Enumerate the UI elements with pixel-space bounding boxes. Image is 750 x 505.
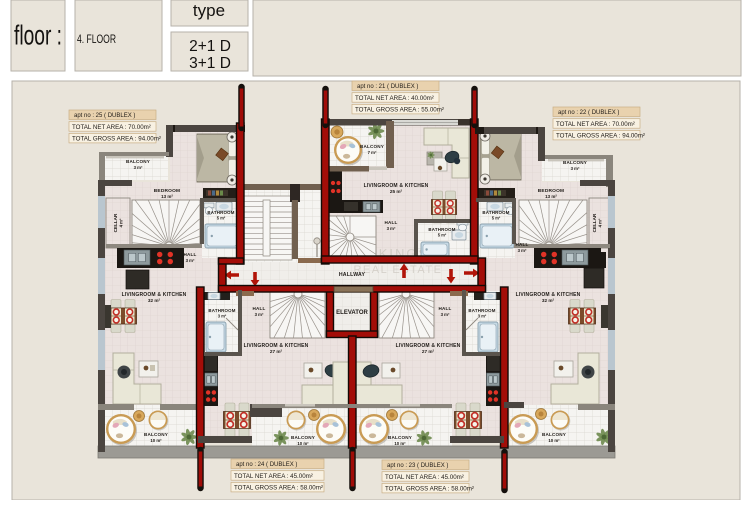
svg-text:3 m²: 3 m²	[255, 312, 264, 317]
svg-text:apt no : 22 ( DUBLEX ): apt no : 22 ( DUBLEX )	[558, 110, 619, 116]
svg-text:LIVINGROOM & KITCHEN: LIVINGROOM & KITCHEN	[122, 292, 187, 298]
svg-text:5 m²: 5 m²	[438, 233, 447, 238]
svg-text:3 m²: 3 m²	[478, 314, 487, 319]
svg-text:floor :: floor :	[14, 20, 62, 51]
svg-text:type: type	[193, 1, 225, 20]
svg-text:TOTAL NET AREA : 45.00m²: TOTAL NET AREA : 45.00m²	[385, 474, 464, 481]
svg-text:27 m²: 27 m²	[270, 349, 283, 354]
svg-text:3 m²: 3 m²	[218, 314, 227, 319]
svg-text:HALL: HALL	[515, 242, 528, 247]
svg-text:25 m²: 25 m²	[390, 189, 403, 194]
svg-text:5 m²: 5 m²	[492, 216, 501, 221]
svg-text:BALCONY: BALCONY	[144, 432, 168, 437]
svg-text:BALCONY: BALCONY	[542, 432, 566, 437]
svg-text:BATHROOM: BATHROOM	[482, 210, 509, 215]
svg-text:TOTAL NET AREA : 45.00m²: TOTAL NET AREA : 45.00m²	[234, 473, 313, 480]
svg-text:HALL: HALL	[183, 252, 196, 257]
svg-text:TOTAL GROSS AREA : 58.00m²: TOTAL GROSS AREA : 58.00m²	[234, 485, 323, 492]
svg-text:apt no : 24 ( DUBLEX ): apt no : 24 ( DUBLEX )	[236, 462, 297, 468]
svg-text:HALLWAY: HALLWAY	[339, 272, 366, 278]
svg-text:BALCONY: BALCONY	[360, 144, 384, 149]
svg-text:BATHROOM: BATHROOM	[207, 210, 234, 215]
svg-text:32 m²: 32 m²	[148, 298, 161, 303]
svg-text:apt no : 21 ( DUBLEX ): apt no : 21 ( DUBLEX )	[357, 84, 418, 90]
svg-text:CELLAR: CELLAR	[113, 213, 118, 232]
svg-text:HALL: HALL	[384, 220, 397, 225]
svg-text:5 m²: 5 m²	[217, 216, 226, 221]
svg-text:BALCONY: BALCONY	[126, 159, 150, 164]
svg-text:TOTAL NET AREA : 70.00m²: TOTAL NET AREA : 70.00m²	[72, 124, 151, 131]
svg-text:3 m²: 3 m²	[134, 165, 143, 170]
svg-text:10 m²: 10 m²	[548, 438, 560, 443]
svg-text:BATHROOM: BATHROOM	[208, 308, 235, 313]
svg-text:LIVINGROOM & KITCHEN: LIVINGROOM & KITCHEN	[516, 292, 581, 298]
svg-text:2+1 D: 2+1 D	[189, 38, 231, 55]
svg-text:BATHROOM: BATHROOM	[468, 308, 495, 313]
svg-text:4. FLOOR: 4. FLOOR	[77, 32, 116, 46]
svg-text:apt no : 25 ( DUBLEX ): apt no : 25 ( DUBLEX )	[74, 113, 135, 119]
svg-text:3 m²: 3 m²	[518, 248, 527, 253]
svg-text:TOTAL GROSS AREA : 58.00m²: TOTAL GROSS AREA : 58.00m²	[385, 486, 474, 493]
svg-text:10 m²: 10 m²	[150, 438, 162, 443]
svg-text:3 m²: 3 m²	[571, 166, 580, 171]
svg-text:10 m²: 10 m²	[297, 441, 309, 446]
svg-text:7 m²: 7 m²	[368, 150, 377, 155]
svg-text:ELEVATOR: ELEVATOR	[336, 310, 368, 316]
svg-text:BATHROOM: BATHROOM	[428, 227, 455, 232]
svg-text:BALCONY: BALCONY	[291, 435, 315, 440]
svg-text:TOTAL NET AREA : 70.00m²: TOTAL NET AREA : 70.00m²	[556, 121, 635, 128]
svg-text:LIVINGROOM & KITCHEN: LIVINGROOM & KITCHEN	[244, 343, 309, 349]
svg-text:TOTAL GROSS AREA : 94.00m²: TOTAL GROSS AREA : 94.00m²	[556, 133, 645, 140]
svg-text:4 m²: 4 m²	[119, 218, 124, 227]
svg-text:TOTAL GROSS AREA : 94.00m²: TOTAL GROSS AREA : 94.00m²	[72, 136, 161, 143]
svg-text:BALCONY: BALCONY	[388, 435, 412, 440]
svg-text:HALL: HALL	[252, 306, 265, 311]
svg-text:4 m²: 4 m²	[598, 218, 603, 227]
svg-text:13 m²: 13 m²	[545, 194, 557, 199]
svg-text:10 m²: 10 m²	[394, 441, 406, 446]
svg-text:HALL: HALL	[438, 306, 451, 311]
svg-text:BALCONY: BALCONY	[563, 160, 587, 165]
svg-text:LIVINGROOM & KITCHEN: LIVINGROOM & KITCHEN	[364, 183, 429, 189]
svg-text:CELLAR: CELLAR	[592, 213, 597, 232]
svg-text:3 m²: 3 m²	[441, 312, 450, 317]
svg-text:3+1 D: 3+1 D	[189, 55, 231, 72]
svg-text:TOTAL GROSS AREA : 55.00m²: TOTAL GROSS AREA : 55.00m²	[355, 107, 444, 114]
svg-text:13 m²: 13 m²	[161, 194, 173, 199]
svg-text:apt no : 23 ( DUBLEX ): apt no : 23 ( DUBLEX )	[387, 463, 448, 469]
svg-text:TOTAL NET AREA : 40.00m²: TOTAL NET AREA : 40.00m²	[355, 95, 434, 102]
svg-text:3 m²: 3 m²	[387, 226, 396, 231]
svg-text:LIVINGROOM & KITCHEN: LIVINGROOM & KITCHEN	[396, 343, 461, 349]
svg-text:32 m²: 32 m²	[542, 298, 555, 303]
svg-text:REAL ESTATE: REAL ESTATE	[353, 264, 442, 276]
svg-text:27 m²: 27 m²	[422, 349, 435, 354]
svg-text:3 m²: 3 m²	[186, 258, 195, 263]
